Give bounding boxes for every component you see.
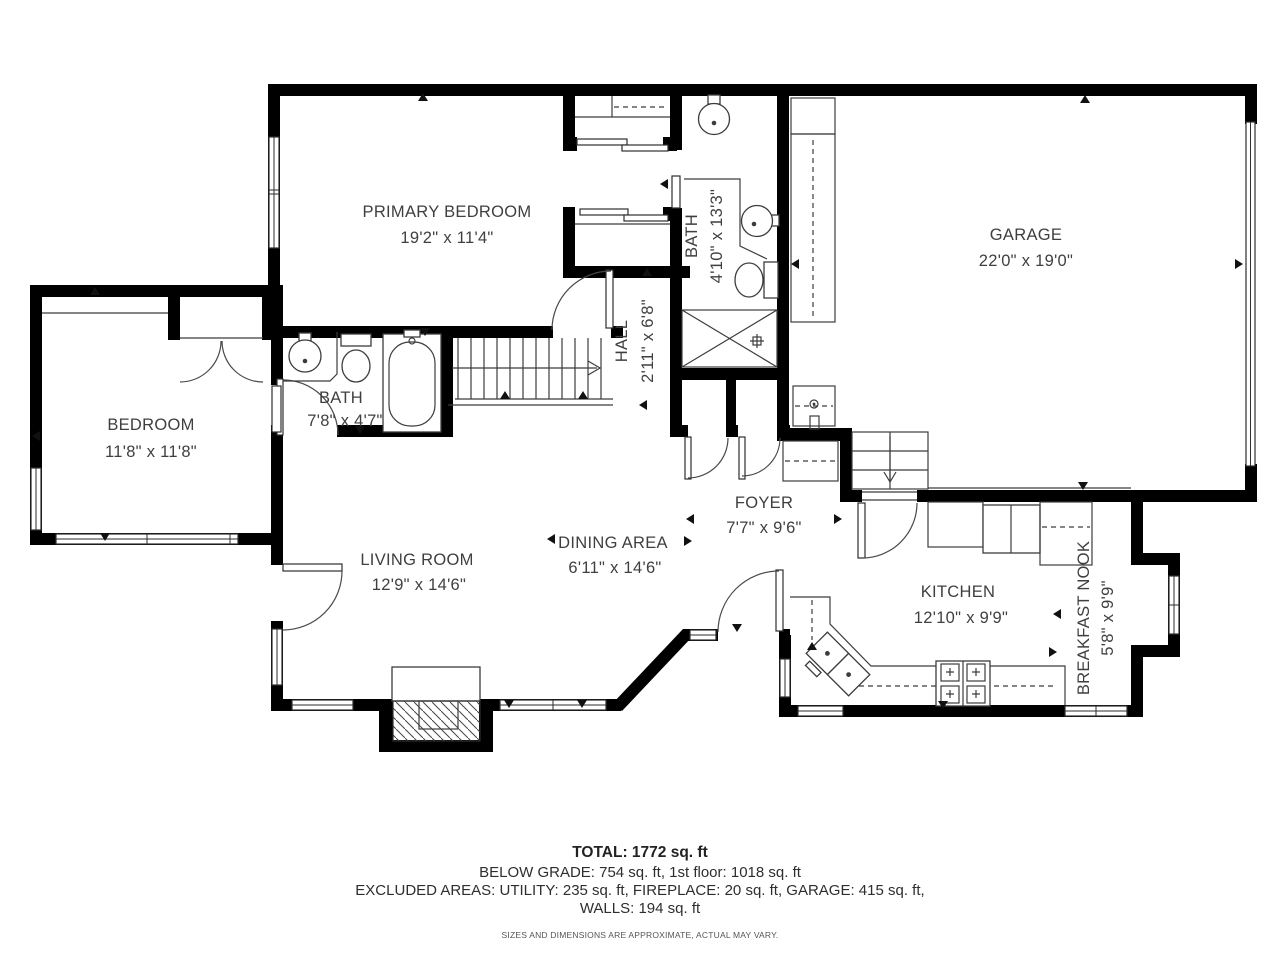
room-dims-bath-main: 7'8" x 4'7" [307,412,382,430]
bath-upper-sink-2 [742,206,780,237]
room-label-living-room: LIVING ROOM [360,551,473,569]
door-bedroom-closet-double [180,338,263,382]
bath-main-tub [383,330,441,432]
primary-closet-a [575,96,670,151]
room-label-hall: HALL [613,320,631,362]
summary-walls: WALLS: 194 sq. ft [580,900,701,917]
garage-door [1246,122,1255,466]
window-living-bottom-2 [500,700,606,710]
summary-below-grade: BELOW GRADE: 754 sq. ft, 1st floor: 1018… [479,864,802,881]
room-dims-primary-bedroom: 19'2" x 11'4" [400,229,493,247]
room-living-room: LIVING ROOM 12'9" x 14'6" [360,551,473,594]
room-dims-hall: 2'11" x 6'8" [639,299,657,383]
door-foyer-closet-2 [739,437,780,479]
room-dining-area: DINING AREA 6'11" x 14'6" [558,534,668,577]
room-dims-bedroom: 11'8" x 11'8" [105,443,197,461]
stairs-basement [852,432,1131,489]
room-label-foyer: FOYER [735,494,793,512]
summary-excluded: EXCLUDED AREAS: UTILITY: 235 sq. ft, FIR… [355,882,924,899]
door-primary-bedroom [552,270,613,330]
window-kitchen-bottom [798,706,843,716]
door-living-room-left [283,564,342,630]
stairs-main [448,338,613,405]
water-heater [793,386,835,429]
room-garage: GARAGE 22'0" x 19'0" [979,226,1073,270]
room-dims-foyer: 7'7" x 9'6" [726,519,801,537]
room-dims-dining-area: 6'11" x 14'6" [568,559,661,577]
room-bath-main: BATH 7'8" x 4'7" [307,389,382,430]
window-nook-bay [1169,576,1179,634]
room-dims-breakfast-nook: 5'8" x 9'9" [1099,580,1117,655]
door-bedroom-opening [272,386,281,432]
room-breakfast-nook: BREAKFAST NOOK 5'8" x 9'9" [1075,541,1117,695]
bath-main-sink [289,333,321,372]
room-label-kitchen: KITCHEN [921,583,996,601]
window-nook-bottom [1065,706,1127,716]
foyer-bench [783,441,838,481]
fixtures [42,95,1092,741]
garage-workbench [791,134,835,322]
doors [180,176,917,632]
window-bedroom-left [31,468,41,530]
bath-upper-toilet [735,262,778,298]
primary-closet-b [575,209,670,224]
summary-total: TOTAL: 1772 sq. ft [572,844,708,861]
room-dims-living-room: 12'9" x 14'6" [372,576,466,594]
room-label-garage: GARAGE [990,226,1062,244]
windows [31,122,1255,716]
window-kitchen-left [780,659,790,697]
room-label-primary-bedroom: PRIMARY BEDROOM [363,203,532,221]
window-dining-bottom [690,630,716,640]
garage-cabinet [791,98,835,134]
room-label-bath-main: BATH [319,389,363,407]
room-dims-kitchen: 12'10" x 9'9" [914,609,1008,627]
room-label-dining-area: DINING AREA [558,534,668,552]
floor-plan-svg: PRIMARY BEDROOM 19'2" x 11'4" GARAGE 22'… [0,0,1280,960]
window-primary-left [269,137,279,248]
floor-plan-page: PRIMARY BEDROOM 19'2" x 11'4" GARAGE 22'… [0,0,1280,960]
room-dims-garage: 22'0" x 19'0" [979,252,1073,270]
kitchen-upper-counter [928,502,1092,565]
window-living-bottom-1 [292,700,353,710]
bath-upper-shower [682,310,777,367]
room-kitchen: KITCHEN 12'10" x 9'9" [914,583,1008,627]
bath-upper-sink-1 [699,95,730,135]
door-front-entry [718,570,783,632]
kitchen-stove [936,661,990,706]
kitchen-sink [800,632,870,702]
room-bedroom: BEDROOM 11'8" x 11'8" [105,416,197,461]
bath-main-toilet [341,334,371,382]
fireplace [392,667,480,741]
room-label-bedroom: BEDROOM [107,416,194,434]
window-living-left [272,629,282,685]
room-dims-bath-upper: 4'10" x 13'3" [708,189,726,283]
room-primary-bedroom: PRIMARY BEDROOM 19'2" x 11'4" [363,203,532,247]
opening-markers [32,93,1243,709]
room-labels: PRIMARY BEDROOM 19'2" x 11'4" GARAGE 22'… [105,189,1117,695]
summary-disclaimer: SIZES AND DIMENSIONS ARE APPROXIMATE, AC… [502,930,779,940]
window-bedroom-bottom [56,534,238,544]
door-bath-upper-pocket [672,176,680,208]
door-foyer-closet-1 [685,437,728,479]
room-label-bath-upper: BATH [683,214,701,258]
room-hall: HALL 2'11" x 6'8" [613,299,657,383]
room-foyer: FOYER 7'7" x 9'6" [726,494,801,537]
door-garage-entry [858,492,917,558]
walls [30,84,1257,752]
summary-block: TOTAL: 1772 sq. ft BELOW GRADE: 754 sq. … [355,844,924,940]
room-label-breakfast-nook: BREAKFAST NOOK [1075,541,1093,695]
